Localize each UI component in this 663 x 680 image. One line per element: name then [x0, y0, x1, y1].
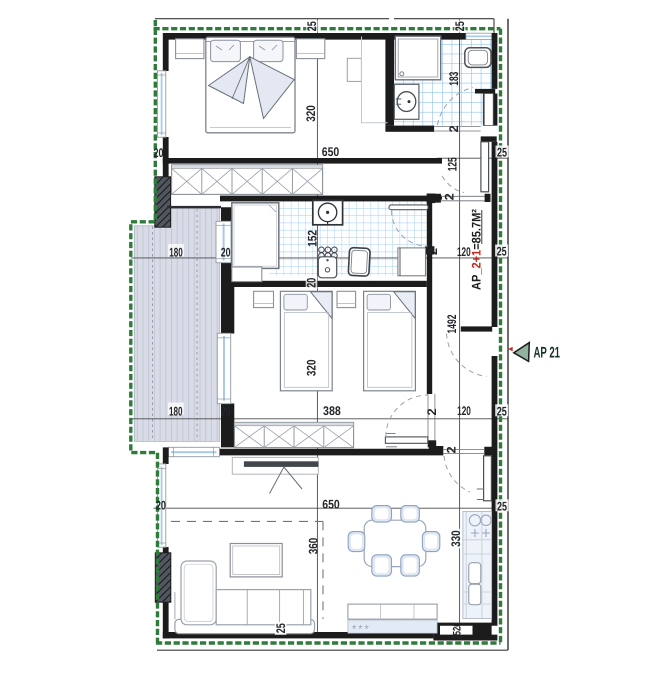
svg-text:25: 25 [453, 21, 467, 31]
svg-text:AP 21: AP 21 [534, 345, 561, 362]
svg-text:183: 183 [447, 72, 461, 86]
svg-text:20: 20 [305, 278, 319, 288]
svg-text:2520: 2520 [451, 623, 463, 640]
svg-text:20: 20 [154, 146, 164, 160]
svg-text:25: 25 [274, 623, 288, 633]
svg-text:650: 650 [322, 145, 340, 159]
svg-text:320: 320 [304, 359, 318, 376]
svg-text:20: 20 [221, 404, 231, 418]
svg-text:120: 120 [457, 404, 471, 418]
svg-text:330: 330 [449, 530, 463, 547]
svg-text:320: 320 [304, 105, 318, 122]
svg-text:25: 25 [497, 245, 507, 259]
svg-text:2: 2 [426, 248, 440, 255]
svg-text:388: 388 [323, 404, 341, 418]
svg-text:125: 125 [446, 157, 460, 171]
svg-text:650: 650 [322, 497, 340, 511]
svg-text:2: 2 [442, 193, 456, 200]
svg-text:2: 2 [445, 446, 459, 453]
svg-text:360: 360 [306, 538, 320, 555]
svg-text:25: 25 [497, 146, 507, 160]
svg-text:25: 25 [497, 404, 507, 418]
svg-text:20: 20 [156, 498, 166, 512]
svg-text:2: 2 [447, 125, 461, 132]
svg-text:25: 25 [305, 21, 319, 31]
svg-text:25: 25 [497, 499, 507, 513]
svg-text:152: 152 [306, 230, 320, 247]
svg-text:180: 180 [169, 246, 183, 260]
svg-text:2: 2 [425, 408, 439, 415]
svg-text:AP_2+1=85.7M²: AP_2+1=85.7M² [469, 209, 483, 290]
svg-text:***: *** [352, 624, 371, 636]
svg-text:1492: 1492 [445, 314, 459, 333]
svg-text:180: 180 [169, 404, 183, 418]
svg-text:20: 20 [221, 246, 231, 260]
